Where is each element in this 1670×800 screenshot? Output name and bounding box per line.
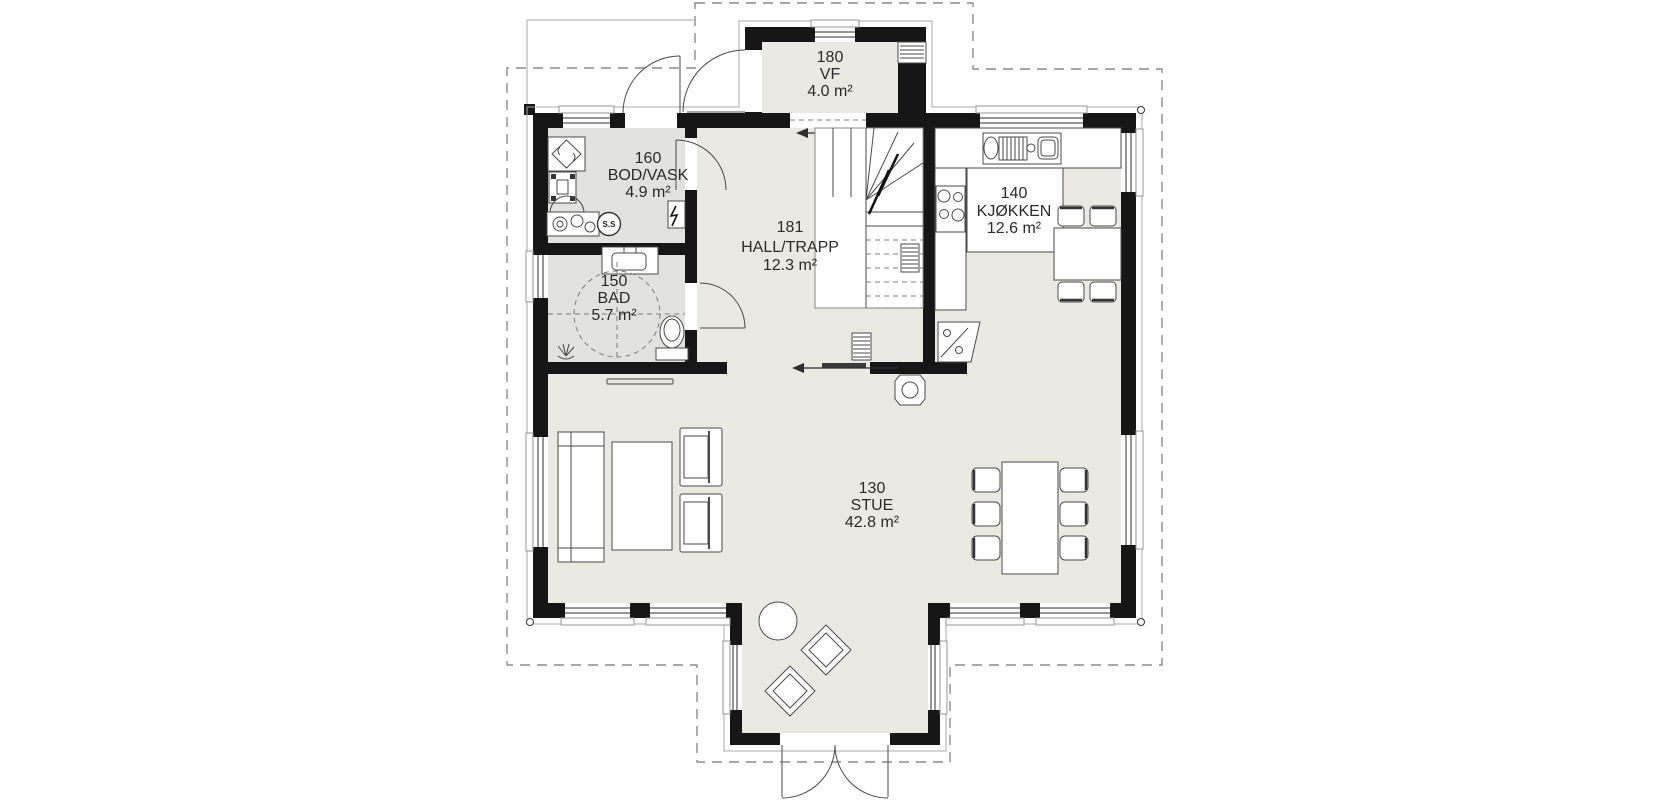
window-sill: [526, 251, 533, 302]
dining-chair: [1060, 502, 1088, 526]
window-sill: [1136, 431, 1143, 549]
opening-vf-entry-door: [745, 50, 762, 112]
wood-stove: [895, 375, 925, 405]
window-sill: [1036, 618, 1114, 625]
window-sill: [723, 641, 730, 714]
bod-exterior-door: [623, 56, 680, 113]
opening-bod-exterior-door: [625, 113, 677, 128]
room-number: 180: [817, 49, 844, 66]
room-area: 42.8 m²: [845, 514, 900, 531]
room-number: 181: [777, 219, 804, 236]
opening-bay-window-east: [928, 645, 940, 710]
opening-bottom-window-2: [650, 603, 726, 618]
room-area: 12.3 m²: [763, 257, 818, 274]
kitchen-chair: [1058, 282, 1084, 302]
opening-stue-window-east: [1121, 435, 1136, 545]
room-area: 5.7 m²: [591, 307, 637, 324]
room-number: 150: [601, 273, 628, 290]
stair-well: [815, 128, 923, 308]
floor-kitchen-opening: [967, 362, 1121, 374]
french-doors: [782, 745, 888, 798]
vanity-sink: [602, 247, 658, 274]
floor-plan-drawing: S.S: [0, 0, 1670, 800]
water-heater: [548, 137, 585, 171]
electrical-panel: [668, 201, 685, 228]
round-table: [759, 602, 797, 640]
room-number: 160: [635, 150, 662, 167]
room-name: HALL/TRAPP: [741, 239, 839, 256]
dining-chair: [1060, 468, 1088, 492]
door-swing-arc: [782, 745, 835, 798]
room-number: 140: [1001, 185, 1028, 202]
vf-entry-door: [683, 50, 745, 112]
corner-marker: [527, 619, 534, 626]
interior-wall-kitchen-divider: [923, 128, 935, 374]
floor-drain-label: S.S: [603, 220, 617, 229]
window-sill: [526, 433, 533, 551]
passage-threshold: [822, 363, 866, 368]
kitchen-chair: [1090, 282, 1116, 302]
kitchen-counter-north: [935, 128, 1121, 168]
floor-plan-page: S.S: [0, 0, 1670, 800]
window-sill: [561, 618, 634, 625]
opening-stue-window-west: [533, 437, 548, 547]
kitchen-counter-west: [935, 168, 966, 310]
dining-chair: [972, 536, 1000, 560]
opening-kitchen-window-east: [1121, 133, 1136, 192]
armchair: [680, 428, 722, 486]
opening-bay-window-west: [730, 645, 742, 710]
kitchen-chair: [1090, 206, 1116, 226]
dining-table: [1002, 462, 1058, 574]
opening-bottom-window-4: [1040, 603, 1110, 618]
door-swing-arc: [835, 745, 888, 798]
room-name: VF: [820, 66, 841, 83]
kitchen-table: [1054, 228, 1121, 280]
opening-bottom-window-3: [950, 603, 1020, 618]
room-name: BAD: [598, 290, 631, 307]
window-sill: [559, 106, 614, 113]
opening-french-doors: [780, 733, 890, 745]
door-swing-arc: [623, 56, 680, 113]
floor-drain: S.S: [598, 213, 621, 236]
window-sill: [946, 618, 1024, 625]
radiator: [852, 333, 871, 360]
radiator: [901, 244, 919, 272]
laundry-sink-counter: [547, 212, 599, 236]
room-name: BOD/VASK: [608, 167, 689, 184]
room-area: 4.0 m²: [807, 83, 853, 100]
corner-marker: [1138, 107, 1145, 114]
coffee-table: [612, 442, 672, 550]
vf-wall-vent: [898, 42, 926, 63]
dining-chair: [972, 502, 1000, 526]
opening-kitchen-window-north: [980, 113, 1083, 128]
sofa: [558, 432, 604, 562]
opening-vf-window: [815, 27, 855, 42]
room-name: STUE: [851, 497, 894, 514]
room-area: 12.6 m²: [987, 220, 1042, 237]
opening-bad-door: [685, 283, 697, 330]
window-sill: [646, 618, 730, 625]
window-sill: [940, 641, 947, 714]
room-name: KJØKKEN: [977, 203, 1052, 220]
window-sill: [1136, 129, 1143, 196]
washing-machine: [549, 172, 576, 203]
opening-bad-window: [533, 255, 548, 298]
room-number: 130: [859, 480, 886, 497]
porch-outline: [527, 20, 694, 110]
window-sill: [811, 20, 859, 27]
opening-bod-window: [563, 113, 610, 128]
kitchen-chair: [1058, 206, 1084, 226]
interior-wall-stue-north-west: [548, 362, 727, 374]
room-area: 4.9 m²: [625, 184, 671, 201]
window-sill: [976, 106, 1087, 113]
dining-chair: [1060, 536, 1088, 560]
armchair: [680, 494, 722, 552]
opening-bottom-window-1: [565, 603, 630, 618]
corner-marker: [1138, 619, 1145, 626]
door-swing-arc: [683, 50, 745, 112]
dining-chair: [972, 468, 1000, 492]
